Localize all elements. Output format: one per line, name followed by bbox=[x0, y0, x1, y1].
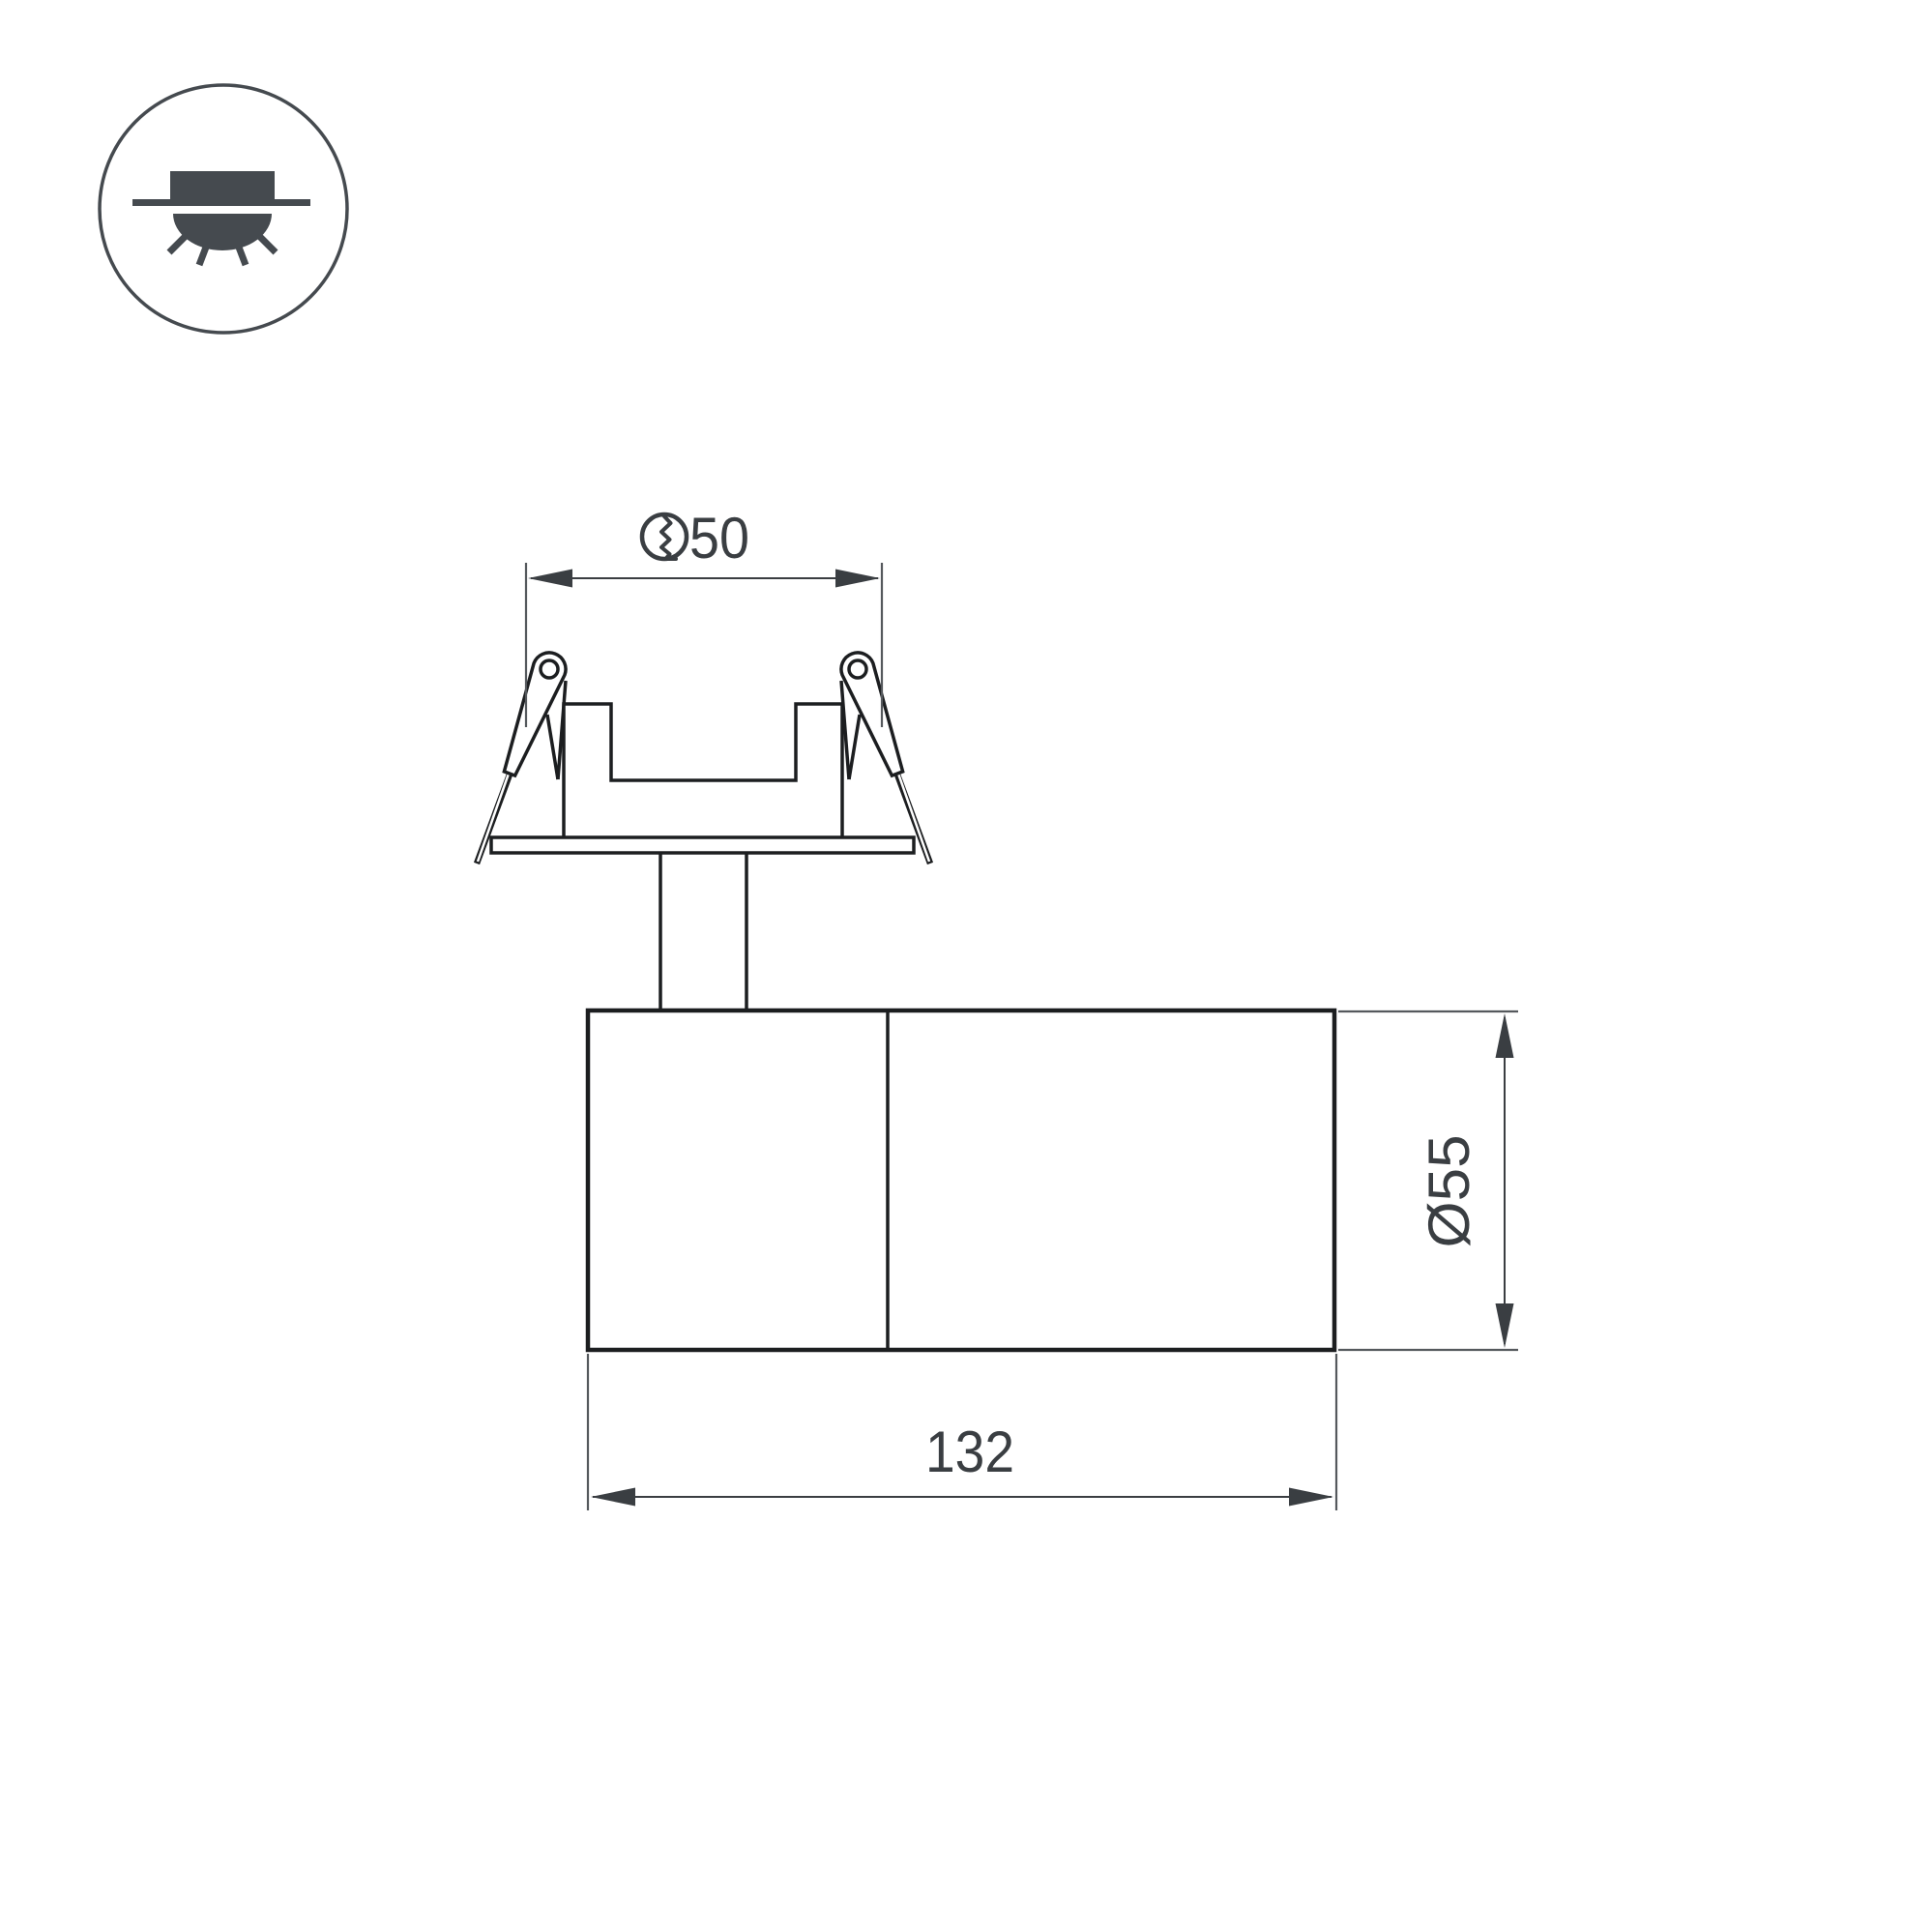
arrowhead-left bbox=[528, 570, 572, 588]
light-ray bbox=[238, 245, 246, 265]
right-clip-pivot-hole bbox=[849, 660, 866, 678]
recessed-cup-profile bbox=[564, 704, 842, 838]
arrowhead-right bbox=[1289, 1488, 1333, 1507]
cut-hole-symbol bbox=[642, 514, 687, 559]
left-spring-clip bbox=[477, 653, 566, 864]
light-ray bbox=[199, 245, 207, 265]
icon-ceiling-line bbox=[132, 199, 310, 206]
recessed-downlight-icon bbox=[100, 85, 347, 333]
body-length-value: 132 bbox=[925, 1420, 1014, 1484]
icon-lamp-dome bbox=[173, 214, 272, 250]
cylinder-body bbox=[588, 1010, 1334, 1350]
light-ray bbox=[258, 235, 276, 252]
arrowhead-left bbox=[591, 1488, 635, 1507]
hole-diameter-value: 50 bbox=[689, 506, 749, 571]
dimension-length-132: 132 bbox=[588, 1354, 1336, 1510]
dimension-diameter-55: Ø55 bbox=[1338, 1011, 1518, 1350]
light-ray bbox=[169, 235, 187, 252]
right-clip-leaf-edge bbox=[849, 715, 860, 779]
left-clip-pivot-hole bbox=[541, 660, 558, 678]
trim-ring-flange bbox=[491, 837, 914, 853]
dimension-hole-50: 50 bbox=[526, 506, 882, 727]
technical-drawing: 50 Ø55 132 bbox=[0, 0, 1932, 1932]
arrowhead-right bbox=[835, 570, 880, 588]
luminaire-fixture bbox=[491, 704, 1334, 1350]
left-clip-leaf-edge bbox=[547, 715, 558, 779]
arrowhead-down bbox=[1496, 1303, 1514, 1348]
stem bbox=[660, 853, 746, 1010]
cut-hole-zigzag bbox=[661, 516, 676, 559]
icon-housing-box bbox=[170, 171, 275, 200]
right-spring-clip bbox=[841, 653, 930, 864]
icon-circle-border bbox=[100, 85, 347, 333]
body-diameter-value: Ø55 bbox=[1417, 1135, 1481, 1248]
arrowhead-up bbox=[1496, 1013, 1514, 1058]
drawing-canvas: 50 Ø55 132 bbox=[0, 0, 1932, 1932]
